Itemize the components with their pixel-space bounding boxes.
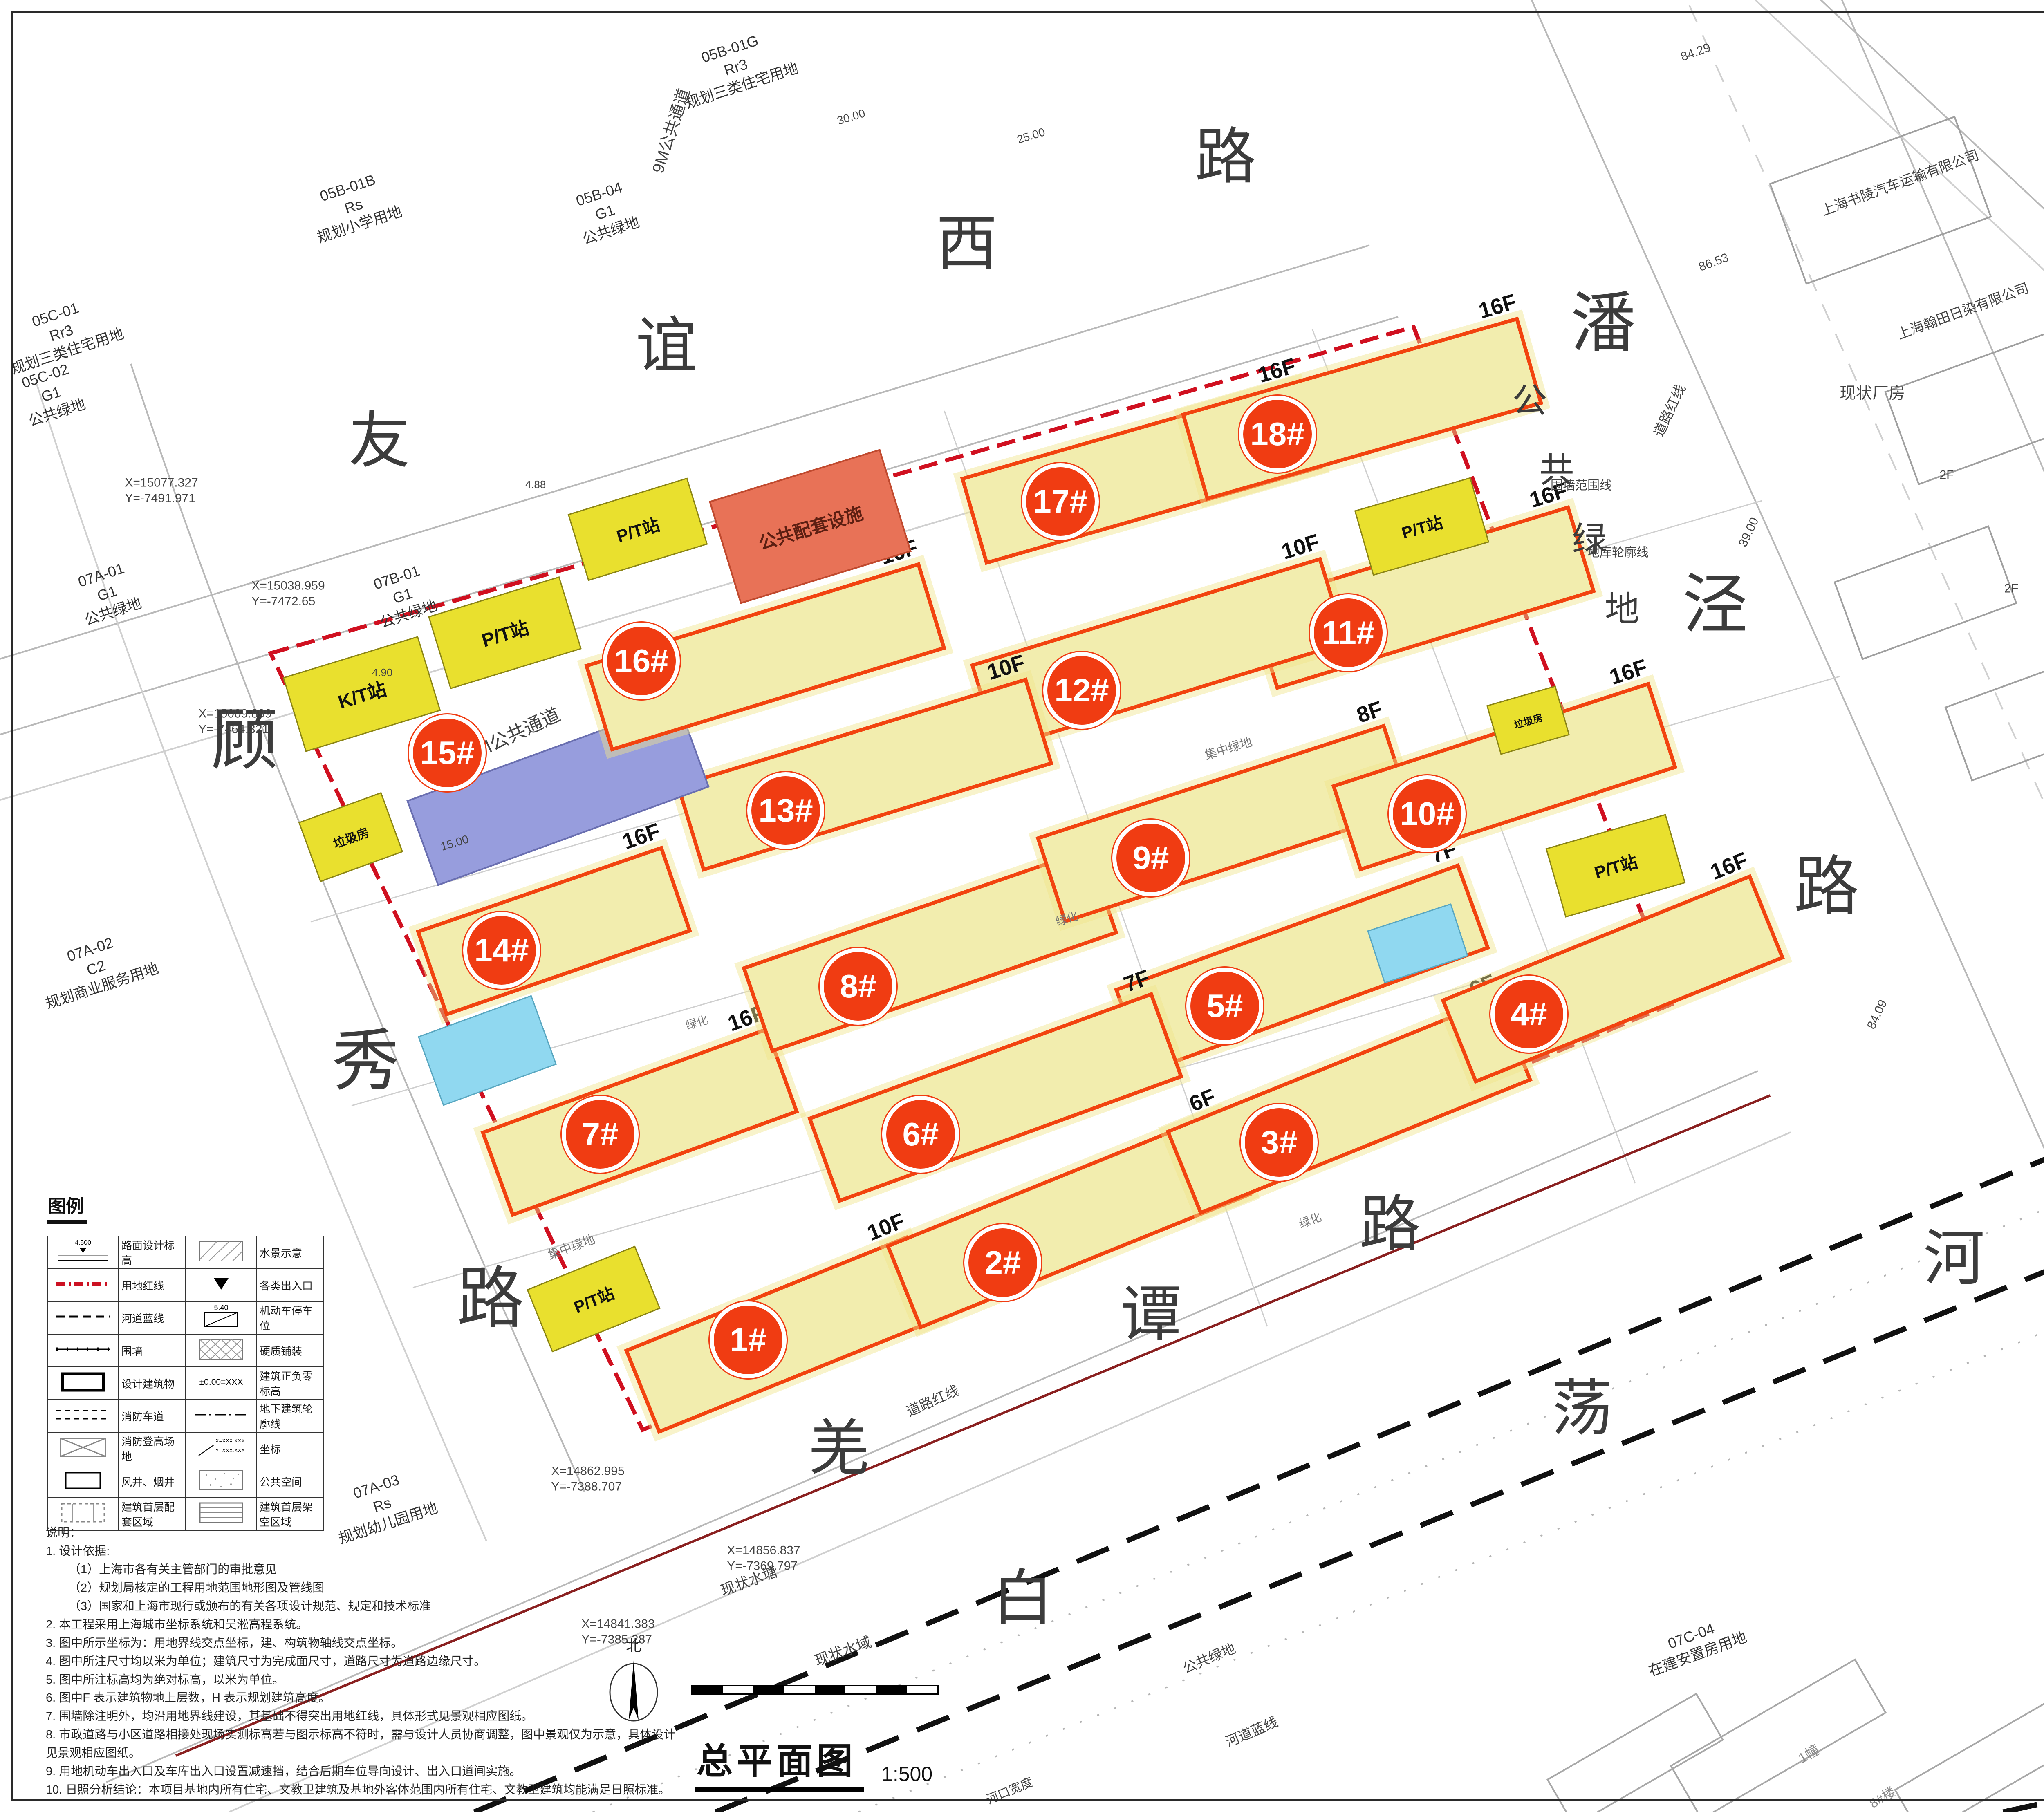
legend-label: 设计建筑物 bbox=[119, 1367, 186, 1400]
redline-icon bbox=[47, 1269, 119, 1301]
road-name-char: 地 bbox=[1605, 593, 1639, 627]
building-badge-5: 5# bbox=[1186, 968, 1263, 1044]
legend-label: 围墙 bbox=[119, 1334, 186, 1367]
plan-annotation: X=15009.899Y=-7464.321 bbox=[198, 706, 271, 737]
legend-row: 围墙硬质铺装 bbox=[47, 1334, 324, 1367]
legend-title: 图例 bbox=[47, 1192, 87, 1224]
pubspace-icon bbox=[186, 1465, 257, 1498]
note-line: 6. 图中F 表示建筑物地上层数，H 表示规划建筑高度。 bbox=[46, 1689, 684, 1707]
paving-icon bbox=[186, 1334, 257, 1367]
box-P/T站: P/T站 bbox=[428, 576, 582, 689]
entry-icon bbox=[186, 1269, 257, 1301]
road-name-char: 友 bbox=[349, 411, 410, 472]
legend-row: 风井、烟井公共空间 bbox=[47, 1465, 324, 1498]
building-badge-2: 2# bbox=[964, 1224, 1041, 1301]
floor-label: 16F bbox=[1707, 847, 1752, 885]
plan-annotation: 现状水域 bbox=[812, 1633, 874, 1670]
plan-annotation: 9M公共通道 bbox=[648, 86, 695, 176]
building-badge-7: 7# bbox=[562, 1096, 639, 1173]
plan-annotation: X=15038.959Y=-7472.65 bbox=[251, 578, 325, 609]
note-line: 7. 围墙除注明外，均沿用地界线建设，其基础不得突出用地红线，具体形式见景观相应… bbox=[46, 1707, 684, 1726]
building-badge-3: 3# bbox=[1241, 1104, 1318, 1181]
legend-label: 地下建筑轮廓线 bbox=[257, 1400, 324, 1432]
road-name-char: 西 bbox=[936, 213, 997, 275]
plan-annotation: 39.00 bbox=[1735, 515, 1762, 549]
floor-label: 8F bbox=[1354, 696, 1386, 728]
building-badge-13: 13# bbox=[747, 772, 824, 849]
road-name-char: 路 bbox=[1794, 854, 1859, 920]
building-badge-12: 12# bbox=[1043, 652, 1120, 729]
plan-annotation: 围墙范围线 bbox=[1551, 478, 1612, 493]
plan-annotation: 25.00 bbox=[1015, 125, 1047, 147]
box-P/T站: P/T站 bbox=[568, 478, 708, 581]
plan-annotation: X=15077.327Y=-7491.971 bbox=[125, 475, 198, 506]
wall-icon bbox=[47, 1334, 119, 1367]
building-18: 16F bbox=[1181, 317, 1543, 501]
building-badge-1: 1# bbox=[710, 1301, 787, 1378]
plan-annotation: 2F bbox=[2004, 581, 2018, 596]
box-垃圾房: 垃圾房 bbox=[298, 792, 403, 882]
road-name-char: 河 bbox=[1923, 1228, 1985, 1290]
plan-annotation: 86.53 bbox=[1697, 250, 1730, 275]
road-name-char: 潘 bbox=[1571, 291, 1636, 356]
plan-annotation: 4.88 bbox=[525, 478, 546, 491]
note-line: （2）规划局核定的工程用地范围地形图及管线图 bbox=[46, 1579, 684, 1597]
floor-label: 16F bbox=[619, 818, 663, 855]
building-badge-15: 15# bbox=[409, 714, 486, 791]
elev-icon: 4.500 bbox=[47, 1236, 119, 1269]
building-badge-18: 18# bbox=[1239, 396, 1316, 473]
note-line: 5. 图中所注标高均为绝对标高，以米为单位。 bbox=[46, 1671, 684, 1689]
legend-row: 4.500路面设计标高水景示意 bbox=[47, 1236, 324, 1269]
box-structure bbox=[418, 995, 557, 1106]
svg-text:X=XXX.XXX: X=XXX.XXX bbox=[215, 1438, 245, 1444]
plan-annotation: 2F bbox=[1939, 467, 1954, 483]
legend-label: 硬质铺装 bbox=[257, 1334, 324, 1367]
shaft-icon bbox=[47, 1465, 119, 1498]
scale-bar bbox=[691, 1685, 939, 1695]
bldg-icon bbox=[47, 1367, 119, 1400]
legend-label: 用地红线 bbox=[119, 1269, 186, 1301]
legend-row: 河道蓝线5.40机动车停车位 bbox=[47, 1301, 324, 1334]
north-arrow: 北 bbox=[601, 1633, 666, 1727]
road-name-char: 路 bbox=[457, 1265, 524, 1333]
plan-annotation: 地库轮廓线 bbox=[1587, 545, 1649, 560]
building-badge-10: 10# bbox=[1389, 775, 1466, 852]
plan-annotation: 84.29 bbox=[1679, 40, 1712, 65]
parcel-label-07A-02: 07A-02C2规划商业服务用地 bbox=[31, 923, 161, 1014]
plan-annotation: 84.09 bbox=[1864, 997, 1891, 1032]
plan-annotation: 道路红线 bbox=[1650, 382, 1690, 439]
legend-label: 坐标 bbox=[257, 1432, 324, 1465]
plan-annotation: 河口宽度 bbox=[984, 1774, 1035, 1808]
notes-lines: 1. 设计依据:（1）上海市各有关主管部门的审批意见（2）规划局核定的工程用地范… bbox=[46, 1542, 684, 1799]
road-name-char: 公 bbox=[1512, 384, 1547, 419]
svg-text:4.500: 4.500 bbox=[75, 1239, 91, 1246]
north-arrow-icon bbox=[603, 1655, 664, 1725]
road-name-char: 路 bbox=[1359, 1194, 1421, 1255]
note-line: 10. 日照分析结论：本项目基地内所有住宅、文教卫建筑及基地外客体范围内所有住宅… bbox=[46, 1781, 684, 1799]
floor-label: 16F bbox=[1606, 654, 1650, 690]
legend-label: 路面设计标高 bbox=[119, 1236, 186, 1269]
svg-text:Y=XXX.XXX: Y=XXX.XXX bbox=[215, 1447, 245, 1454]
road-name-char: 路 bbox=[1195, 127, 1256, 188]
plan-annotation: 上海书陵汽车运输有限公司 bbox=[1819, 146, 1981, 220]
note-line: 3. 图中所示坐标为：用地界线交点坐标，建、构筑物轴线交点坐标。 bbox=[46, 1634, 684, 1653]
road-name-char: 羌 bbox=[808, 1418, 870, 1480]
plan-annotation: 绿化 bbox=[684, 1012, 710, 1033]
note-line: 2. 本工程采用上海城市坐标系统和吴淞高程系统。 bbox=[46, 1616, 684, 1634]
floor-label: 10F bbox=[984, 650, 1028, 685]
building-badge-8: 8# bbox=[820, 948, 896, 1025]
legend-label: 水景示意 bbox=[257, 1236, 324, 1269]
legend-label: 风井、烟井 bbox=[119, 1465, 186, 1498]
parcel-label-05B-01B: 05B-01BRs规划小学用地 bbox=[303, 166, 405, 247]
svg-text:5.40: 5.40 bbox=[214, 1304, 228, 1312]
parcel-label-05B-04: 05B-04G1公共绿地 bbox=[568, 176, 642, 249]
plan-title-block: 总平面图 1:500 bbox=[695, 1732, 932, 1792]
plan-annotation: 集中绿地 bbox=[546, 1232, 597, 1263]
building-badge-16: 16# bbox=[603, 623, 680, 699]
blueline-icon bbox=[47, 1301, 119, 1334]
plan-annotation: 绿化 bbox=[1297, 1210, 1324, 1231]
plan-annotation: 集中绿地 bbox=[1203, 735, 1254, 764]
legend-row: 用地红线各类出入口 bbox=[47, 1269, 324, 1301]
uline-icon bbox=[186, 1400, 257, 1432]
zero-icon: ±0.00=XXX bbox=[186, 1367, 257, 1400]
box-P/T站: P/T站 bbox=[1546, 814, 1686, 918]
note-line: 9. 用地机动车出入口及车库出入口设置减速挡，结合后期车位导向设计、出入口道闸实… bbox=[46, 1763, 684, 1781]
legend-label: 消防车道 bbox=[119, 1400, 186, 1432]
plan-scale: 1:500 bbox=[881, 1762, 932, 1792]
road-name-char: 秀 bbox=[332, 1028, 400, 1095]
building-badge-9: 9# bbox=[1112, 820, 1189, 896]
road-name-char: 泾 bbox=[1682, 572, 1748, 638]
plan-annotation: 现状厂房 bbox=[1840, 383, 1905, 403]
legend-label: 消防登高场地 bbox=[119, 1432, 186, 1465]
legend-row: 设计建筑物±0.00=XXX建筑正负零标高 bbox=[47, 1367, 324, 1400]
notes: 说明： 1. 设计依据:（1）上海市各有关主管部门的审批意见（2）规划局核定的工… bbox=[46, 1524, 684, 1799]
building-badge-17: 17# bbox=[1022, 463, 1099, 540]
note-line: 8. 市政道路与小区道路相接处现场实测标高若与图示标高不符时，需与设计人员协商调… bbox=[46, 1726, 684, 1763]
plan-annotation: 8#楼 bbox=[1867, 1784, 1899, 1812]
legend-label: 机动车停车位 bbox=[257, 1301, 324, 1334]
plan-annotation: 道路红线 bbox=[904, 1382, 962, 1420]
road-name-char: 谊 bbox=[636, 316, 697, 377]
fire-icon bbox=[47, 1400, 119, 1432]
building-badge-6: 6# bbox=[882, 1096, 959, 1173]
parcel-label-07B-01: 07B-01G1公共绿地 bbox=[366, 560, 439, 632]
note-line: （1）上海市各有关主管部门的审批意见 bbox=[46, 1561, 684, 1579]
legend-row: 消防车道地下建筑轮廓线 bbox=[47, 1400, 324, 1432]
road-name-char: 白 bbox=[992, 1568, 1053, 1630]
legend-label: 公共空间 bbox=[257, 1465, 324, 1498]
road-name-char: 荡 bbox=[1551, 1378, 1613, 1440]
building-badge-14: 14# bbox=[463, 912, 540, 989]
note-line: 4. 图中所注尺寸均以米为单位；建筑尺寸为完成面尺寸，道路尺寸为道路边缘尺寸。 bbox=[46, 1653, 684, 1671]
plan-title: 总平面图 bbox=[695, 1732, 864, 1792]
legend: 图例 4.500路面设计标高水景示意用地红线各类出入口河道蓝线5.40机动车停车… bbox=[47, 1192, 324, 1531]
box-P/T站: P/T站 bbox=[527, 1245, 660, 1352]
plan-annotation: 公共绿地 bbox=[1180, 1640, 1238, 1678]
legend-label: 各类出入口 bbox=[257, 1269, 324, 1301]
parcel-label-07C-04: 07C-04在建安置房用地 bbox=[1640, 1610, 1750, 1681]
legend-label: 建筑正负零标高 bbox=[257, 1367, 324, 1400]
note-line: 1. 设计依据: bbox=[46, 1542, 684, 1561]
plan-annotation: X=14862.995Y=-7388.707 bbox=[551, 1464, 624, 1494]
note-line: （3）国家和上海市现行或颁布的有关各项设计规范、规定和技术标准 bbox=[46, 1597, 684, 1616]
parcel-label-07A-01: 07A-01G1公共绿地 bbox=[70, 557, 144, 630]
legend-label: 河道蓝线 bbox=[119, 1301, 186, 1334]
plan-annotation: 30.00 bbox=[835, 106, 867, 128]
firefield-icon bbox=[47, 1432, 119, 1465]
road-name-char: 谭 bbox=[1120, 1284, 1181, 1346]
drawing-sheet: 10F1#6F2#6F3#16F4#7F5#7F6#16F7#8F8#8F9#1… bbox=[0, 0, 2044, 1812]
legend-table: 4.500路面设计标高水景示意用地红线各类出入口河道蓝线5.40机动车停车位围墙… bbox=[47, 1236, 324, 1531]
legend-row: 消防登高场地X=XXX.XXXY=XXX.XXX坐标 bbox=[47, 1432, 324, 1465]
building-badge-11: 11# bbox=[1310, 594, 1387, 671]
floor-label: 16F bbox=[1476, 289, 1520, 324]
plan-annotation: 4.90 bbox=[372, 666, 393, 679]
water-icon bbox=[186, 1236, 257, 1269]
building-4: 16F bbox=[1441, 874, 1785, 1084]
parking-icon: 5.40 bbox=[186, 1301, 257, 1334]
building-badge-4: 4# bbox=[1490, 976, 1567, 1053]
floor-label: 10F bbox=[1278, 529, 1322, 564]
notes-heading: 说明： bbox=[46, 1524, 684, 1542]
north-label: 北 bbox=[601, 1633, 666, 1655]
coord-icon: X=XXX.XXXY=XXX.XXX bbox=[186, 1432, 257, 1465]
svg-text:±0.00=XXX: ±0.00=XXX bbox=[199, 1377, 243, 1387]
plan-annotation: 河道蓝线 bbox=[1223, 1713, 1281, 1751]
plan-annotation: 上海翰田日染有限公司 bbox=[1895, 280, 2031, 343]
plan-annotation: 1幢 bbox=[1795, 1741, 1822, 1767]
